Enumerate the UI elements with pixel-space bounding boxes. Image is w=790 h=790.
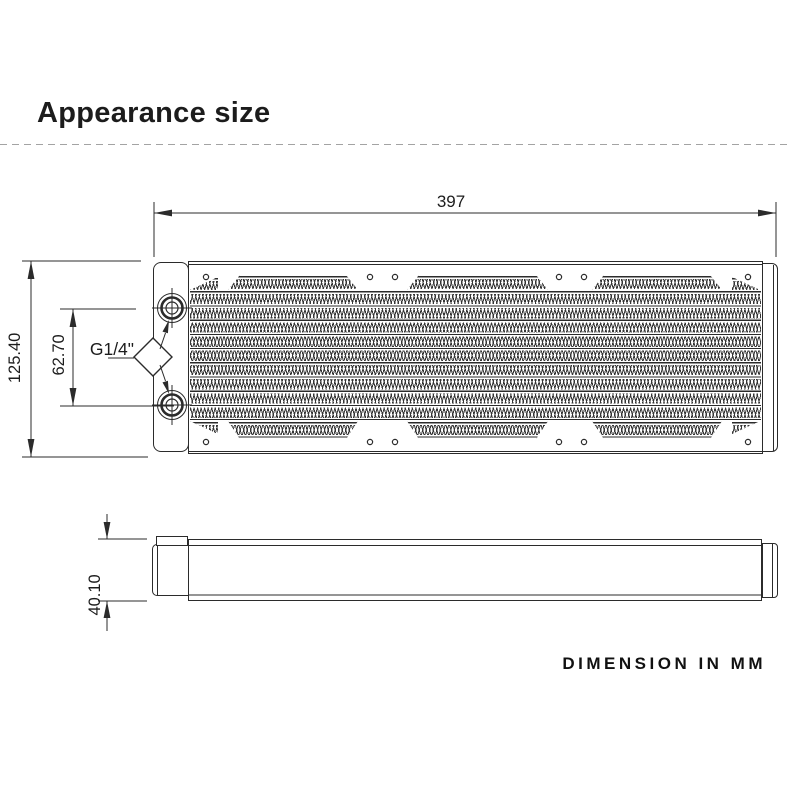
side-right-cap xyxy=(762,543,778,598)
side-port-boss xyxy=(156,536,188,546)
dim-label-port-spacing: 62.70 xyxy=(50,325,70,385)
units-note: DIMENSION IN MM xyxy=(500,654,766,674)
side-left-cap xyxy=(152,544,189,596)
dim-label-overall-height: 125.40 xyxy=(6,323,26,393)
technical-drawing-page: Appearance size xyxy=(0,0,790,790)
side-body xyxy=(188,539,762,601)
dim-label-port-thread: G1/4" xyxy=(80,339,134,360)
dim-label-thickness: 40.10 xyxy=(86,565,106,625)
dim-label-length: 397 xyxy=(431,192,471,212)
